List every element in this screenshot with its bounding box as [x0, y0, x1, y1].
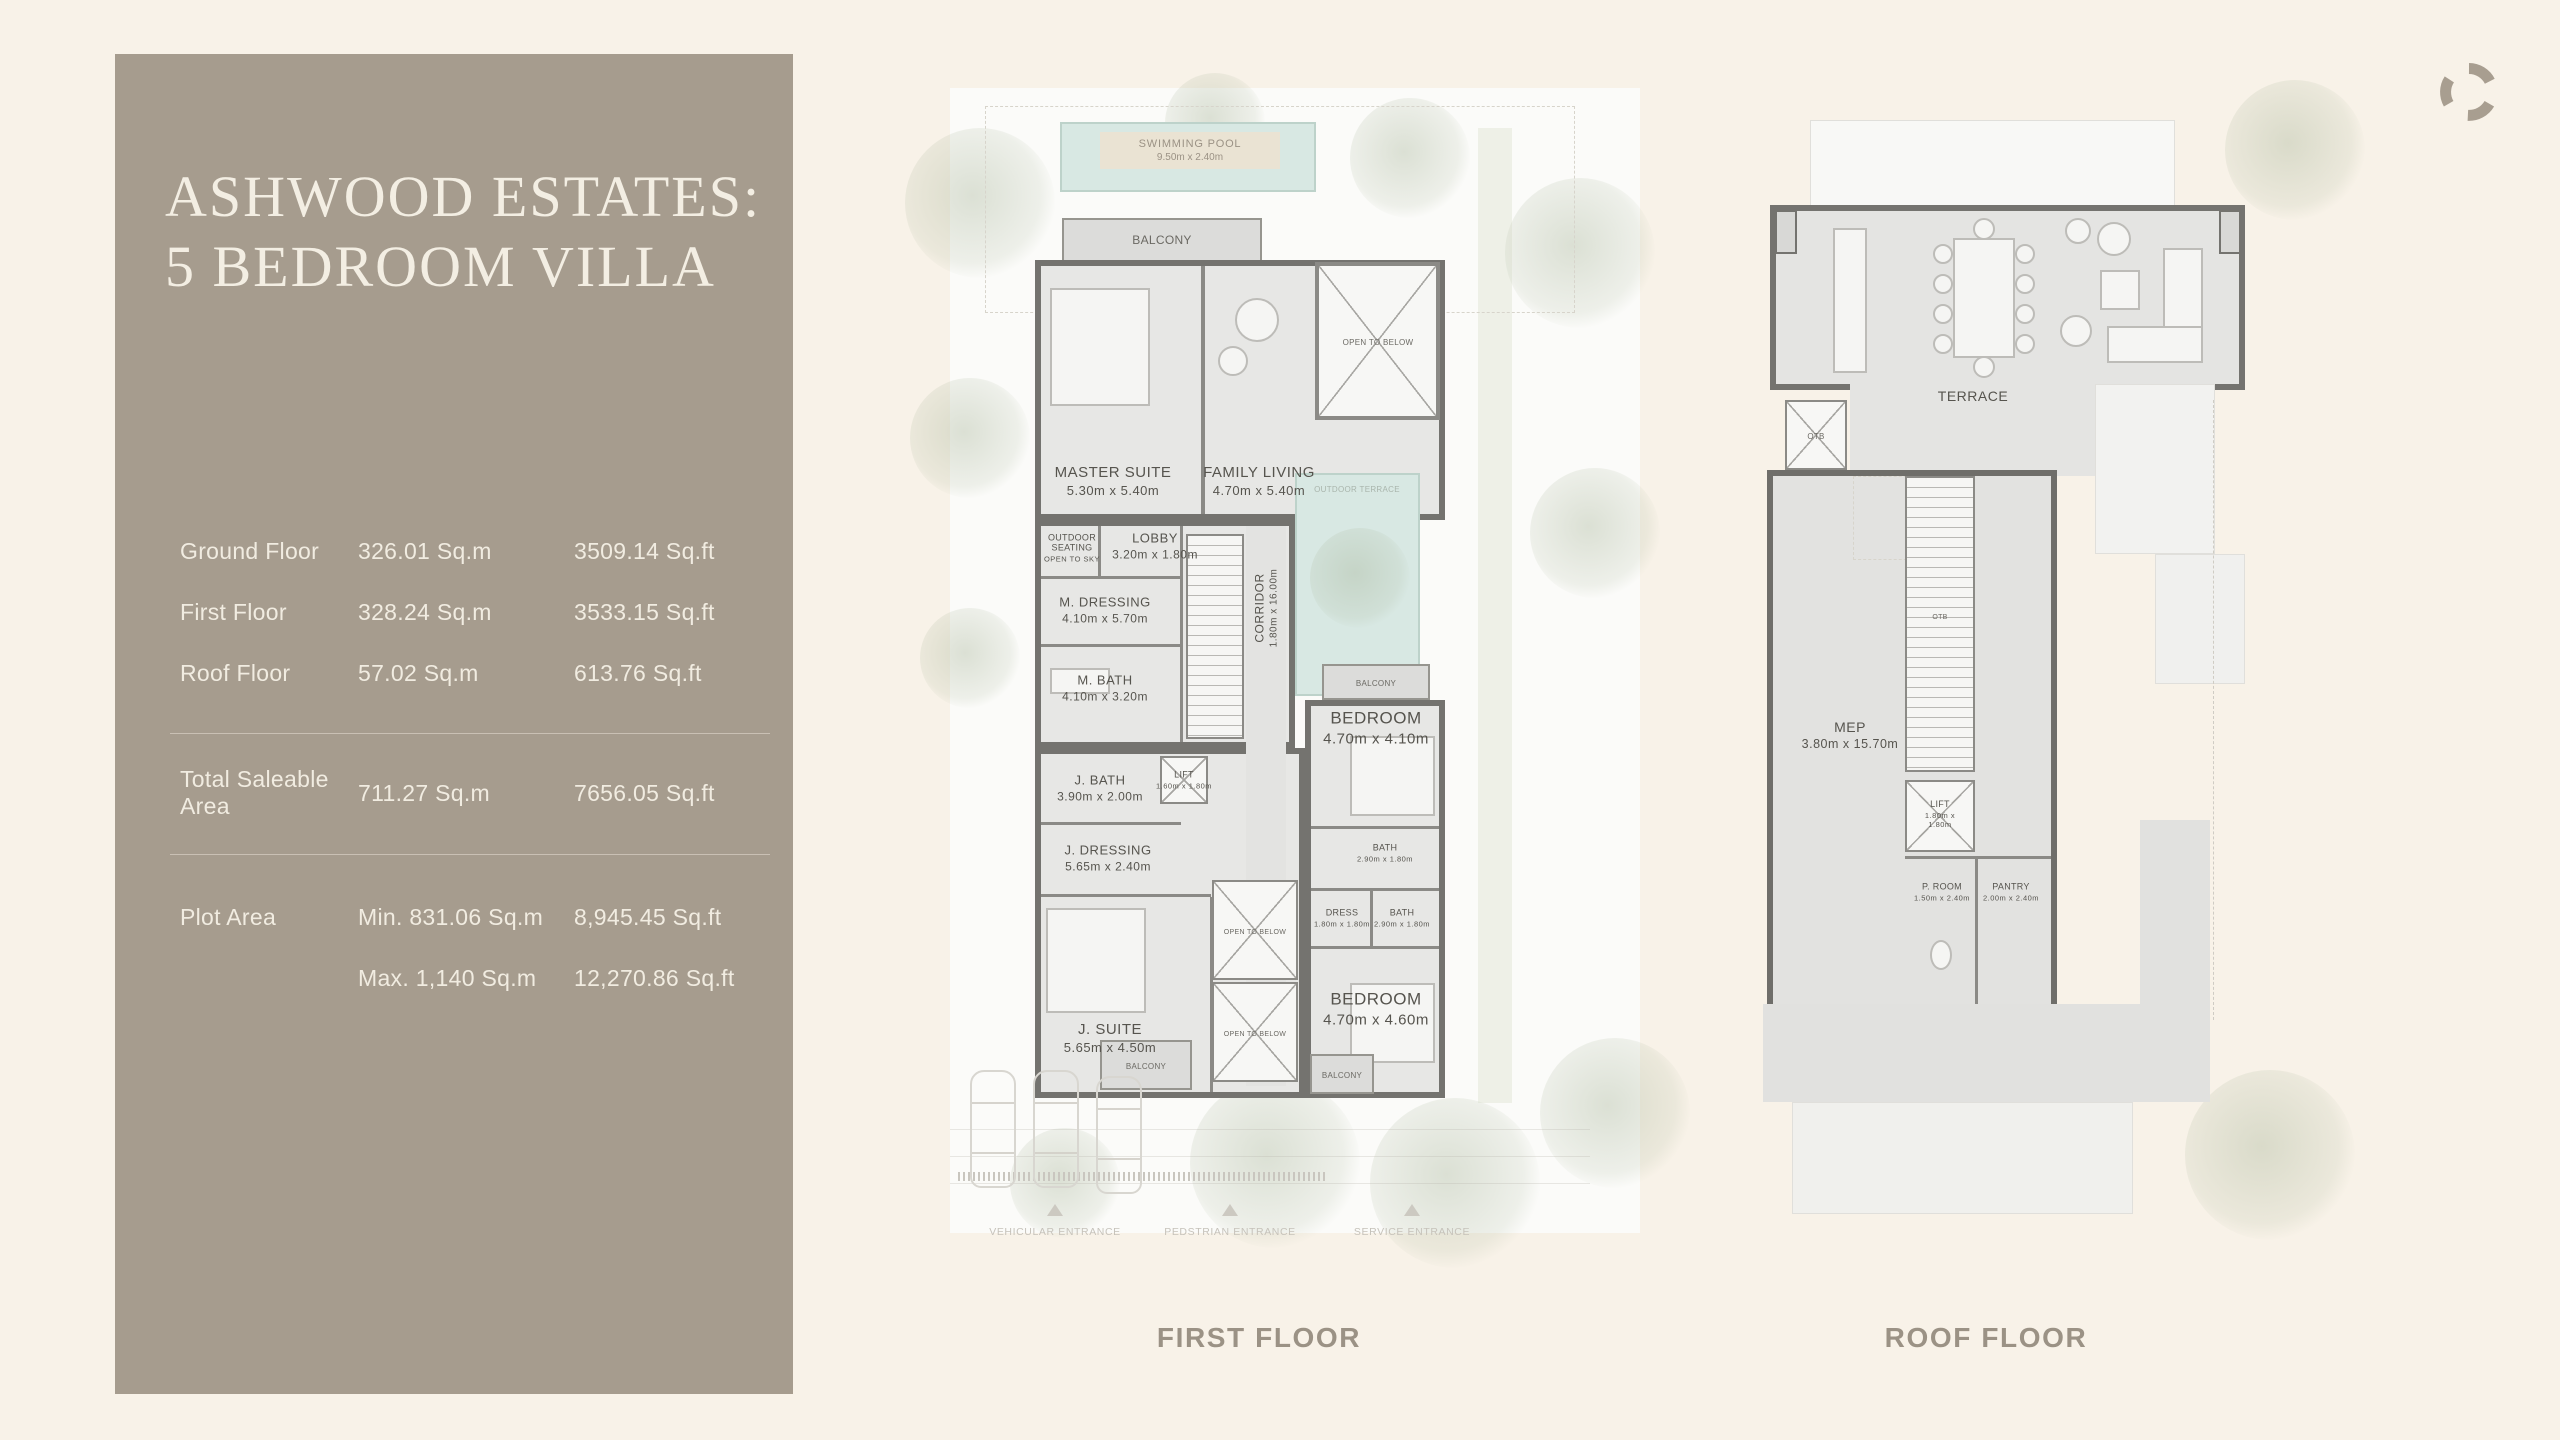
plot-max-sqft: 12,270.86 Sq.ft [574, 965, 780, 992]
row-sqft: 7656.05 Sq.ft [574, 780, 780, 807]
plot-boundary-dashed [2213, 400, 2214, 1020]
pedestrian-entrance-marker [1222, 1204, 1238, 1216]
room-label-bedroom-top: BEDROOM4.70m x 4.10m [1323, 709, 1429, 748]
page-title-line1: ASHWOOD ESTATES: [165, 162, 761, 232]
chair-icon [2015, 244, 2035, 264]
swimming-pool-label: SWIMMING POOL 9.50m x 2.40m [1100, 132, 1280, 169]
page-title: ASHWOOD ESTATES: 5 BEDROOM VILLA [165, 162, 761, 302]
tree-icon [2185, 1070, 2355, 1240]
window-stub [1775, 210, 1797, 254]
stairs-icon [1905, 476, 1975, 772]
sofa-icon [2107, 326, 2203, 363]
room-label-j-bath: J. BATH3.90m x 2.00m [1057, 773, 1143, 804]
coffee-table-icon [2060, 315, 2092, 347]
room-label-j-suite: J. SUITE5.65m x 4.50m [1064, 1021, 1157, 1055]
divider [170, 854, 770, 855]
open-to-below-label: OPEN TO BELOW [1224, 929, 1286, 936]
dining-table-icon [1953, 238, 2015, 358]
roof-terrace-outline [2095, 384, 2215, 554]
total-saleable-row: Total Saleable Area 711.27 Sq.m 7656.05 … [180, 766, 780, 854]
chair-icon [2015, 274, 2035, 294]
row-sqm: 326.01 Sq.m [358, 538, 574, 565]
plant-icon [2097, 222, 2131, 256]
plot-min-sqft: 8,945.45 Sq.ft [574, 904, 780, 931]
tree-icon [1530, 468, 1660, 598]
chair-icon [1973, 218, 1995, 240]
room-label-lobby: LOBBY3.20m x 1.80m [1112, 531, 1198, 562]
first-floor-plan: SWIMMING POOL 9.50m x 2.40m BALCONY OPEN… [950, 88, 1640, 1233]
chair-icon [2015, 334, 2035, 354]
plot-area-rows: Plot Area Min. 831.06 Sq.m Max. 1,140 Sq… [180, 904, 780, 1026]
car-icon [1096, 1076, 1142, 1194]
wall [1041, 576, 1181, 579]
otb-label: OTB [1807, 432, 1824, 441]
plot-min-sqm: Min. 831.06 Sq.m [358, 904, 574, 931]
room-label-outdoor-seating: OUTDOOR SEATING OPEN TO SKY [1040, 533, 1104, 564]
room-label-p-room: P. ROOM1.50m x 2.40m [1914, 882, 1970, 903]
table-row-roof-floor: Roof Floor 57.02 Sq.m 613.76 Sq.ft [180, 660, 780, 687]
room-label-j-dressing: J. DRESSING5.65m x 2.40m [1064, 843, 1151, 874]
pedestrian-entrance-label: PEDSTRIAN ENTRANCE [1164, 1226, 1296, 1238]
row-sqft: 3533.15 Sq.ft [574, 599, 780, 626]
row-label: Roof Floor [180, 660, 358, 687]
chair-icon [1933, 334, 1953, 354]
wall [1041, 644, 1181, 647]
row-sqm: 328.24 Sq.m [358, 599, 574, 626]
balcony-label: BALCONY [1132, 233, 1191, 247]
bed-icon [1046, 908, 1146, 1013]
room-label-family-living: FAMILY LIVING4.70m x 5.40m [1203, 464, 1315, 498]
balcony-label: BALCONY [1322, 1071, 1362, 1080]
wall [1311, 946, 1439, 949]
balcony-label: BALCONY [1126, 1062, 1166, 1071]
table-row-ground-floor: Ground Floor 326.01 Sq.m 3509.14 Sq.ft [180, 538, 780, 565]
caption-first-floor: FIRST FLOOR [1157, 1322, 1361, 1354]
counter-icon [1833, 228, 1867, 373]
open-to-below-label: OPEN TO BELOW [1343, 338, 1414, 347]
wall [1041, 822, 1181, 825]
roof-terrace-outline [2155, 554, 2245, 684]
swirl-logo-icon [2437, 60, 2501, 124]
wall [1905, 856, 2051, 859]
roof-slab-lower [1792, 1102, 2133, 1214]
plot-max-sqm: Max. 1,140 Sq.m [358, 965, 574, 992]
window-stub [2219, 210, 2241, 254]
chair-icon [1933, 274, 1953, 294]
row-sqm: 711.27 Sq.m [358, 780, 574, 807]
row-label: First Floor [180, 599, 358, 626]
roof-overhang-outline [1810, 120, 2175, 208]
room-label-dress: DRESS1.80m x 1.80m [1314, 908, 1370, 929]
toilet-icon [1930, 940, 1952, 970]
room-label-mep: MEP3.80m x 15.70m [1802, 719, 1899, 751]
wall [1311, 888, 1439, 891]
tree-icon [2225, 80, 2365, 220]
room-label-master-suite: MASTER SUITE5.30m x 5.40m [1055, 464, 1172, 498]
room-label-bedroom-bottom: BEDROOM4.70m x 4.60m [1323, 990, 1429, 1029]
tree-icon [920, 608, 1020, 708]
bed-icon [1350, 736, 1435, 816]
room-label-pantry: PANTRY2.00m x 2.40m [1983, 882, 2039, 903]
chair-icon [2015, 304, 2035, 324]
tree-icon [910, 378, 1030, 498]
open-to-below-label: OPEN TO BELOW [1224, 1031, 1286, 1038]
balcony-label: BALCONY [1356, 679, 1396, 688]
roof-slab [2140, 820, 2210, 1102]
wall [1975, 859, 1978, 1004]
chair-icon [1933, 244, 1953, 264]
room-label-roof-lift: LIFT1.80m x 1.80m [1918, 799, 1962, 829]
stairs-icon [1186, 534, 1244, 739]
car-icon [970, 1070, 1016, 1188]
row-sqft: 3509.14 Sq.ft [574, 538, 780, 565]
row-label: Total Saleable Area [180, 766, 358, 820]
vehicular-entrance-marker [1047, 1204, 1063, 1216]
wall [1041, 894, 1211, 897]
divider [170, 733, 770, 734]
row-label: Ground Floor [180, 538, 358, 565]
wall [1370, 891, 1373, 946]
table-row-first-floor: First Floor 328.24 Sq.m 3533.15 Sq.ft [180, 599, 780, 626]
otb-label: OTB [1932, 614, 1947, 621]
row-sqft: 613.76 Sq.ft [574, 660, 780, 687]
roof-floor-plan: TERRACE OTB OTB MEP3.80m x 15.70m LIFT1.… [1755, 120, 2265, 1160]
table-icon [1235, 298, 1279, 342]
row-label: Plot Area [180, 904, 358, 931]
room-label-m-dressing: M. DRESSING4.10m x 5.70m [1059, 595, 1150, 626]
chair-icon [1218, 346, 1248, 376]
wall [1311, 826, 1439, 829]
table-icon [2100, 270, 2140, 310]
service-entrance-marker [1404, 1204, 1420, 1216]
service-entrance-label: SERVICE ENTRANCE [1354, 1226, 1470, 1238]
room-label-bath-top: BATH2.90m x 1.80m [1357, 843, 1413, 864]
page-title-line2: 5 BEDROOM VILLA [165, 232, 761, 302]
chair-icon [1933, 304, 1953, 324]
vehicular-entrance-label: VEHICULAR ENTRANCE [989, 1226, 1121, 1238]
plant-icon [2065, 218, 2091, 244]
room-label-bath-bottom: BATH2.90m x 1.80m [1374, 908, 1430, 929]
floor-area-table: Ground Floor 326.01 Sq.m 3509.14 Sq.ft F… [180, 538, 780, 721]
room-label-terrace: TERRACE [1938, 388, 2008, 404]
bed-icon [1050, 288, 1150, 406]
room-label-m-bath: M. BATH4.10m x 3.20m [1062, 673, 1148, 704]
tree-icon [1310, 528, 1410, 628]
row-sqm: 57.02 Sq.m [358, 660, 574, 687]
outdoor-terrace-label: OUTDOOR TERRACE [1314, 485, 1400, 494]
room-label-corridor: CORRIDOR1.80m x 16.00m [1253, 569, 1280, 648]
info-sidebar: ASHWOOD ESTATES: 5 BEDROOM VILLA Ground … [115, 54, 793, 1394]
chair-icon [1973, 356, 1995, 378]
caption-roof-floor: ROOF FLOOR [1885, 1322, 2088, 1354]
room-label-lift: LIFT1.60m x 1.80m [1156, 770, 1212, 791]
roof-slab [1763, 1004, 2140, 1102]
car-icon [1033, 1070, 1079, 1188]
